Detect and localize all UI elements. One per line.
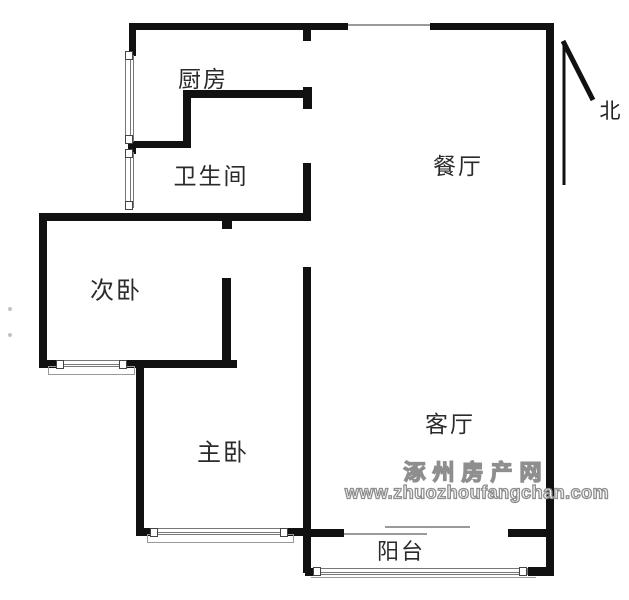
wall-door-jamb-stub [222,221,232,229]
room-label-balcony: 阳台 [377,534,425,566]
kitchen-window-cap-top [125,51,133,60]
watermark-site-url: www.zhuozhoufangchan.com [345,483,609,504]
wall-living-bottom-left [303,529,344,537]
bathroom-window [125,152,134,208]
masterbed-window-frame [147,534,294,543]
balcony-window [315,568,528,575]
wall-left-exterior [39,213,47,363]
kitchen-window-cap-bottom [125,135,133,144]
wall-bathroom-bottom [39,213,310,221]
masterbed-window-cap-right [280,528,288,537]
wall-stub-top-middle [303,30,311,41]
secondbed-window [59,360,124,367]
wall-middle-upper [303,163,311,221]
balcony-slider-leaf-upper [385,526,470,528]
north-label: 北 [600,95,621,125]
bathroom-window-cap-top [125,149,133,158]
secondbed-window-cap-right [119,360,127,369]
wall-top-left [129,23,348,30]
north-arrow-icon [552,34,602,194]
room-label-bathroom: 卫生间 [174,157,249,191]
wall-balcony-corner-right [528,567,554,576]
secondbed-window-cap-left [56,360,64,369]
room-label-second-bedroom: 次卧 [90,271,142,306]
wall-secondbed-bottom-right [122,360,237,368]
scan-artifact-dot [8,307,12,311]
room-label-kitchen: 厨房 [178,60,228,94]
room-label-master-bedroom: 主卧 [197,433,249,468]
balcony-window-outer-line [311,577,536,578]
wall-kitchen-door-cap [303,87,312,109]
wall-kitchen-step-vertical [183,90,191,148]
balcony-window-cap-right [519,567,527,576]
kitchen-window [125,55,134,142]
balcony-window-cap-left [313,567,321,576]
floor-plan: 北 厨房 卫生间 次卧 主卧 餐厅 客厅 阳台 涿州房产网 www.zhuozh… [0,0,629,600]
wall-hallway-vertical [222,278,231,368]
wall-masterbed-left [136,368,144,536]
masterbed-window [154,528,285,535]
wall-bathroom-top [129,141,189,148]
bathroom-window-cap-bottom [125,201,133,210]
room-label-living-room: 客厅 [425,405,475,439]
wall-top-right [430,23,554,30]
top-window-line [348,24,430,26]
scan-artifact-dot [8,333,12,337]
masterbed-window-cap-left [150,528,158,537]
room-label-dining-room: 餐厅 [433,147,483,181]
wall-living-bottom-right [508,529,554,537]
